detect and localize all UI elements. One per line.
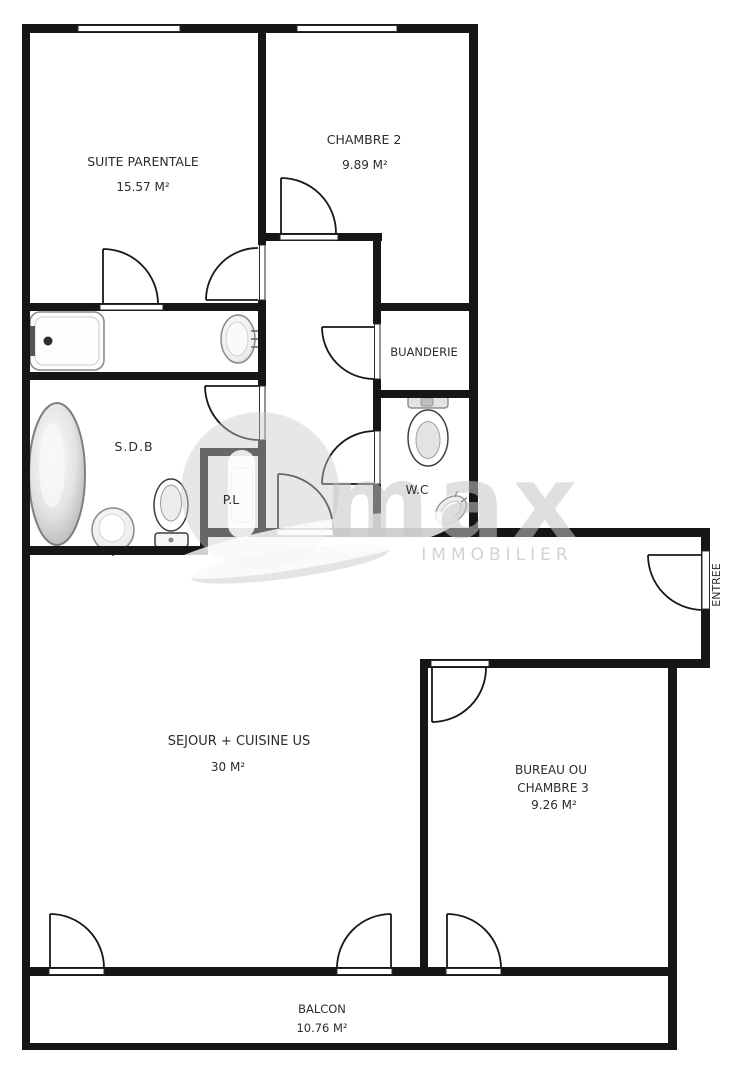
label-buanderie: BUANDERIE (390, 345, 458, 359)
label-bureau-line2: CHAMBRE 3 (517, 781, 589, 795)
threshold-balcon-bureau (446, 969, 501, 975)
label-balcon: BALCON (298, 1002, 346, 1016)
window-suite (78, 26, 180, 32)
threshold-bureau (431, 661, 489, 667)
threshold-suite-corridor (260, 245, 266, 300)
drain-icon (44, 337, 53, 346)
threshold-balcon-mid (337, 969, 392, 975)
door-suite-ensuite (103, 249, 158, 304)
wall-sdb-bottom (22, 546, 208, 555)
wall-strip-bottom (22, 372, 266, 380)
door-buanderie (322, 327, 374, 379)
wall-bureau-left (420, 659, 428, 976)
label-chambre2: CHAMBRE 2 (327, 132, 402, 147)
threshold-suite-ensuite (100, 305, 163, 311)
bathtub-inner (39, 424, 65, 508)
wall-buanderie-top (373, 303, 478, 311)
label-suite-parentale: SUITE PARENTALE (87, 154, 199, 169)
label-balcon-area: 10.76 M² (296, 1021, 347, 1035)
label-bureau-area: 9.26 M² (531, 798, 577, 812)
window-chambre2 (297, 26, 397, 32)
label-entree: ENTREE (710, 563, 723, 606)
label-sdb: S.D.B (114, 439, 153, 454)
door-suite-corridor (206, 248, 258, 300)
entry-door-leaf (702, 551, 710, 609)
shower-tray (22, 312, 104, 370)
label-pl: P.L (223, 492, 240, 507)
door-bureau (432, 668, 486, 722)
label-wc: W.C (406, 483, 429, 497)
watermark-brand: max (325, 444, 585, 561)
wall-right-lower (668, 664, 677, 1050)
label-suite-parentale-area: 15.57 M² (116, 180, 170, 194)
label-chambre2-area: 9.89 M² (342, 158, 388, 172)
threshold-balcon-left (49, 969, 104, 975)
door-balcon-left (50, 914, 104, 968)
room-labels: SUITE PARENTALE 15.57 M² CHAMBRE 2 9.89 … (87, 132, 723, 1035)
wall-balcon-bottom (22, 1043, 677, 1050)
threshold-buanderie (375, 324, 381, 379)
wall-corridor-right-b (373, 379, 381, 431)
door-chambre2 (281, 178, 336, 233)
label-sejour-area: 30 M² (211, 760, 245, 774)
wall-left-outer (22, 24, 30, 1050)
floorplan-svg: max IMMOBILIER SUITE PARENTALE 15.57 M² … (0, 0, 733, 1080)
ensuite-sink (221, 315, 261, 363)
label-bureau-line1: BUREAU OU (515, 763, 587, 777)
floorplan-page: max IMMOBILIER SUITE PARENTALE 15.57 M² … (0, 0, 733, 1080)
wall-buanderie-wc-divider (373, 390, 473, 398)
wall-divider-bedrooms (258, 33, 266, 245)
door-entree (648, 555, 702, 610)
door-balcon-bureau (447, 914, 501, 968)
label-sejour: SEJOUR + CUISINE US (168, 734, 311, 749)
threshold-chambre2 (280, 235, 338, 241)
watermark-tagline: IMMOBILIER (421, 545, 572, 565)
door-balcon-mid (337, 914, 391, 968)
